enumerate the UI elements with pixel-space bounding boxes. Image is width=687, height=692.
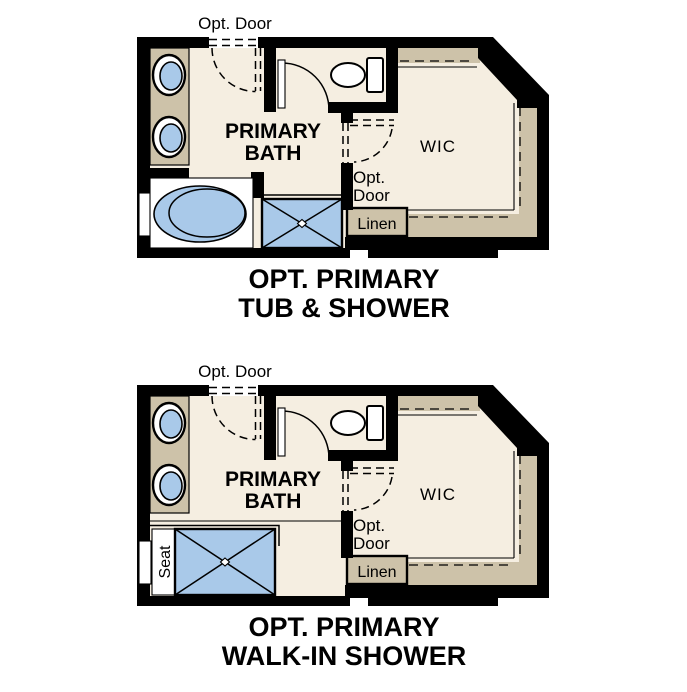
floorplan-diagram: Opt. Door PRIMARY BATH WIC Opt. Door Lin… [0, 0, 687, 687]
floorplan-walk-in-shower: Opt. Door PRIMARY BATH WIC Opt. Door Lin… [137, 362, 549, 671]
closet-label: WIC [420, 485, 456, 504]
caption-line1: OPT. PRIMARY [248, 264, 439, 294]
closet-label: WIC [420, 137, 456, 156]
entry-door-label: Opt. Door [198, 14, 272, 33]
shower [262, 195, 342, 248]
room-label-line2: BATH [245, 142, 302, 165]
floorplan-tub-and-shower: Opt. Door PRIMARY BATH WIC Opt. Door Lin… [137, 14, 549, 323]
window [139, 193, 151, 236]
toilet-door-leaf [278, 408, 285, 456]
window [139, 541, 151, 584]
linen-label: Linen [357, 564, 396, 581]
closet-door-label-line2: Door [353, 534, 390, 553]
sink [153, 465, 185, 505]
room-label-line1: PRIMARY [225, 468, 321, 491]
sink [153, 55, 185, 95]
linen-label: Linen [357, 216, 396, 233]
bathtub [154, 186, 246, 242]
floorplan-sheet: Opt. Door PRIMARY BATH WIC Opt. Door Lin… [0, 0, 687, 687]
sink [153, 117, 185, 157]
closet-door-label-line1: Opt. [353, 168, 385, 187]
sink [153, 403, 185, 443]
caption-line2: WALK-IN SHOWER [222, 641, 466, 671]
room-label-line2: BATH [245, 490, 302, 513]
toilet-door-leaf [278, 60, 285, 108]
room-label-line1: PRIMARY [225, 120, 321, 143]
caption-line1: OPT. PRIMARY [248, 612, 439, 642]
closet-door-label-line2: Door [353, 186, 390, 205]
seat-label: Seat [157, 545, 174, 578]
caption-line2: TUB & SHOWER [238, 293, 450, 323]
closet-door-label-line1: Opt. [353, 516, 385, 535]
entry-door-label: Opt. Door [198, 362, 272, 381]
